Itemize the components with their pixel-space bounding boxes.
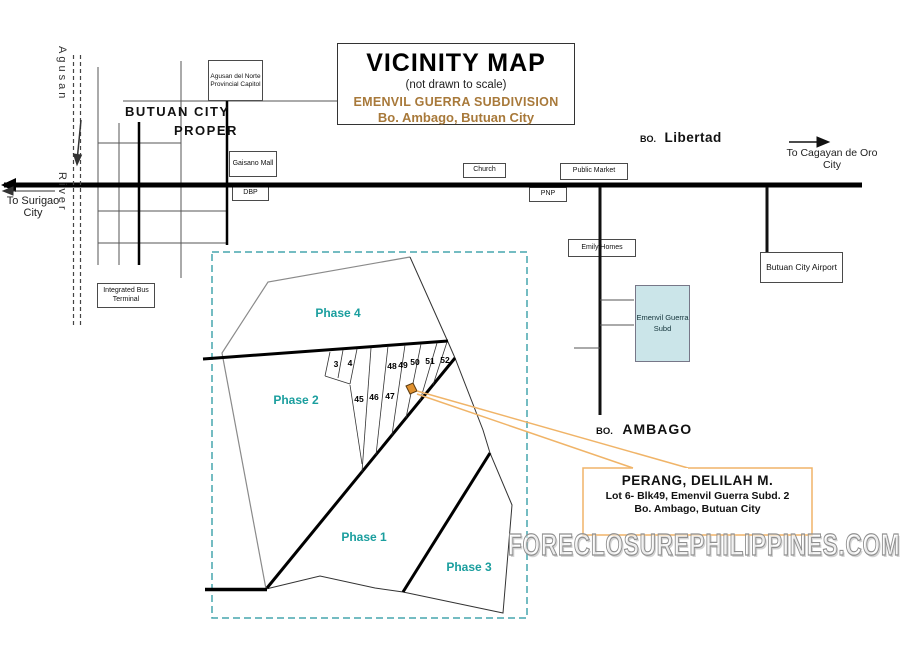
highway-west-arrow-icon: [1, 178, 16, 192]
lot-number-3: 3: [334, 359, 339, 369]
landmark-box-emily-homes: Emily Homes: [568, 239, 636, 257]
main-highway: [1, 178, 862, 192]
landmark-box-emenvil-subd: Emenvil Guerra Subd: [635, 285, 690, 362]
map-title: VICINITY MAP: [338, 49, 574, 78]
landmark-box-bus-terminal: Integrated Bus Terminal: [97, 283, 155, 308]
phase-4-label: Phase 4: [315, 306, 360, 320]
landmark-box-airport: Butuan City Airport: [760, 252, 843, 283]
phase-1-label: Phase 1: [341, 530, 386, 544]
lot-number-50: 50: [410, 357, 419, 367]
owner-name: PERANG, DELILAH M.: [583, 473, 812, 488]
title-box: VICINITY MAP (not drawn to scale) EMENVI…: [337, 43, 575, 125]
phase-2-label: Phase 2: [273, 393, 318, 407]
gaisano-mall-label: Gaisano Mall: [233, 160, 274, 168]
river-name-top: Agusan: [56, 46, 68, 101]
owner-callout: PERANG, DELILAH M. Lot 6- Blk49, Emenvil…: [583, 473, 812, 515]
owner-location: Bo. Ambago, Butuan City: [583, 503, 812, 515]
to-cagayan-arrow-icon: [789, 137, 829, 147]
proper-label: PROPER: [174, 123, 238, 138]
bo-libertad-label: BO. Libertad: [640, 129, 722, 147]
landmark-box-gaisano-mall: Gaisano Mall: [229, 151, 277, 177]
pnp-label: PNP: [541, 190, 555, 198]
lot-number-52: 52: [440, 355, 449, 365]
landmark-box-dbp: DBP: [232, 186, 269, 201]
public-market-label: Public Market: [573, 167, 615, 175]
vicinity-map: Agusan del Norte Provincial Capitol Gais…: [0, 0, 900, 655]
owner-lot-info: Lot 6- Blk49, Emenvil Guerra Subd. 2: [583, 490, 812, 502]
capitol-label: Agusan del Norte Provincial Capitol: [210, 73, 261, 89]
dbp-label: DBP: [243, 189, 257, 197]
bo-ambago-label: BO. AMBAGO: [596, 421, 692, 439]
map-subtitle: (not drawn to scale): [338, 79, 574, 91]
airport-label: Butuan City Airport: [766, 262, 837, 272]
subdivision-name: EMENVIL GUERRA SUBDIVISION: [338, 95, 574, 109]
bus-terminal-label: Integrated Bus Terminal: [99, 287, 153, 304]
plat-main-roads: [203, 341, 490, 592]
phase-3-label: Phase 3: [446, 560, 491, 574]
lot-number-46: 46: [369, 392, 378, 402]
river-flow-arrow-icon: [74, 120, 82, 165]
watermark: FORECLOSUREPHILIPPINES.COM: [508, 527, 900, 563]
emily-homes-label: Emily Homes: [581, 244, 622, 252]
emenvil-subd-label: Emenvil Guerra Subd: [636, 313, 689, 333]
to-cagayan-label: To Cagayan de Oro City: [770, 148, 894, 171]
church-label: Church: [473, 166, 496, 174]
lot-number-4: 4: [348, 358, 353, 368]
landmark-box-capitol: Agusan del Norte Provincial Capitol: [208, 60, 263, 101]
landmark-box-public-market: Public Market: [560, 163, 628, 180]
lot-number-49: 49: [398, 360, 407, 370]
subject-lot-marker: [406, 383, 417, 394]
road-connectors: [574, 300, 634, 348]
lot-number-48: 48: [387, 361, 396, 371]
lot-number-45: 45: [354, 394, 363, 404]
agusan-river: [74, 55, 81, 327]
to-surigao-label: To Surigao City: [2, 195, 64, 219]
landmark-box-church: Church: [463, 163, 506, 178]
landmark-box-pnp: PNP: [529, 187, 567, 202]
lot-number-51: 51: [425, 356, 434, 366]
lot-number-47: 47: [385, 391, 394, 401]
butuan-city-label: BUTUAN CITY: [125, 104, 230, 119]
to-surigao-arrow-icon: [3, 187, 55, 195]
subdivision-location: Bo. Ambago, Butuan City: [338, 110, 574, 125]
